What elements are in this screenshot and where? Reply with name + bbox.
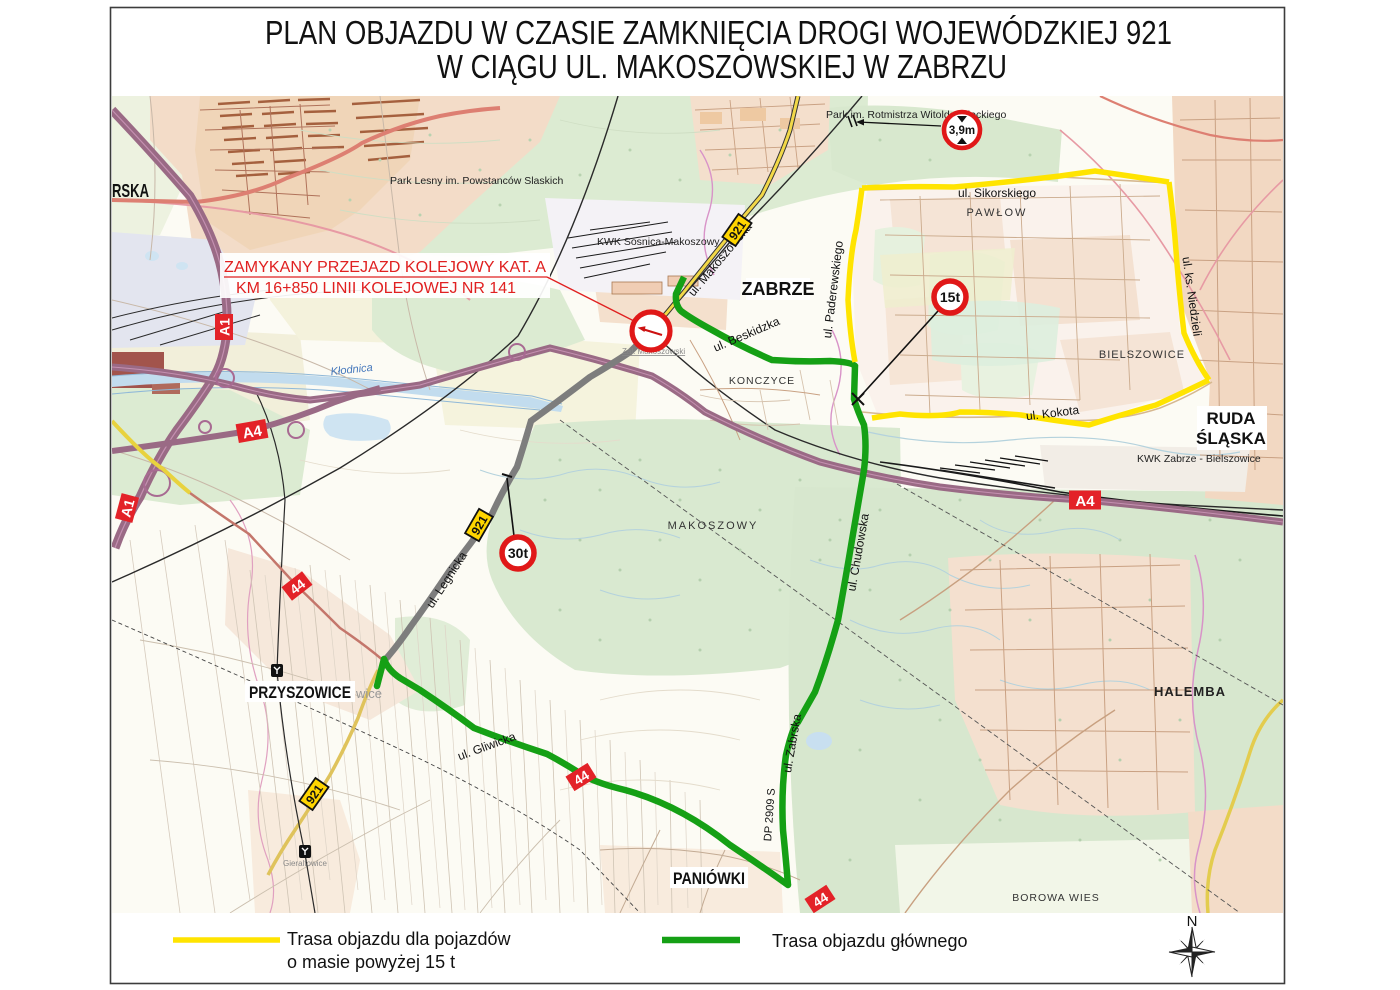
svg-text:Park Lesny im. Powstanców Slas: Park Lesny im. Powstanców Slaskich [390, 175, 563, 187]
svg-text:15t: 15t [940, 289, 961, 305]
svg-text:BIELSZOWICE: BIELSZOWICE [1099, 349, 1185, 361]
svg-text:ZABRZE: ZABRZE [742, 279, 815, 299]
svg-text:ZAMYKANY PRZEJAZD KOLEJOWY KAT: ZAMYKANY PRZEJAZD KOLEJOWY KAT. A [224, 259, 546, 276]
svg-text:A4: A4 [241, 422, 263, 442]
svg-text:RSKA: RSKA [112, 181, 149, 201]
svg-text:A4: A4 [1075, 493, 1095, 510]
svg-text:wice: wice [355, 686, 382, 701]
svg-text:PLAN OBJAZDU W CZASIE ZAMKNIĘC: PLAN OBJAZDU W CZASIE ZAMKNIĘCIA DROGI W… [265, 14, 1172, 51]
svg-text:W CIĄGU UL. MAKOSZOWSKIEJ W ZA: W CIĄGU UL. MAKOSZOWSKIEJ W ZABRZU [437, 48, 1007, 85]
svg-text:KONCZYCE: KONCZYCE [729, 375, 795, 387]
svg-text:KWK Zabrze - Bielszowice: KWK Zabrze - Bielszowice [1137, 453, 1261, 465]
svg-text:ul. Sikorskiego: ul. Sikorskiego [958, 186, 1036, 200]
svg-text:o masie powyżej 15 t: o masie powyżej 15 t [287, 952, 455, 972]
svg-text:HALEMBA: HALEMBA [1154, 684, 1226, 699]
svg-text:Trasa objazdu głównego: Trasa objazdu głównego [772, 931, 967, 951]
svg-text:ŚLĄSKA: ŚLĄSKA [1196, 429, 1266, 448]
svg-text:BOROWA WIES: BOROWA WIES [1012, 892, 1100, 904]
svg-text:KM 16+850 LINII KOLEJOWEJ NR 1: KM 16+850 LINII KOLEJOWEJ NR 141 [236, 280, 516, 297]
svg-text:PRZYSZOWICE: PRZYSZOWICE [249, 684, 351, 702]
svg-text:MAKOSZOWY: MAKOSZOWY [668, 520, 759, 532]
svg-text:PAWŁOW: PAWŁOW [967, 207, 1028, 219]
svg-text:A1: A1 [217, 318, 233, 336]
svg-text:KWK Sosnica-Makoszowy: KWK Sosnica-Makoszowy [597, 236, 720, 248]
svg-text:3,9m: 3,9m [949, 125, 975, 137]
svg-text:PANIÓWKI: PANIÓWKI [673, 869, 745, 888]
svg-text:RUDA: RUDA [1206, 409, 1255, 428]
svg-text:30t: 30t [508, 545, 529, 561]
svg-text:Gieraltowice: Gieraltowice [283, 859, 328, 868]
svg-text:Trasa objazdu dla pojazdów: Trasa objazdu dla pojazdów [287, 929, 511, 949]
